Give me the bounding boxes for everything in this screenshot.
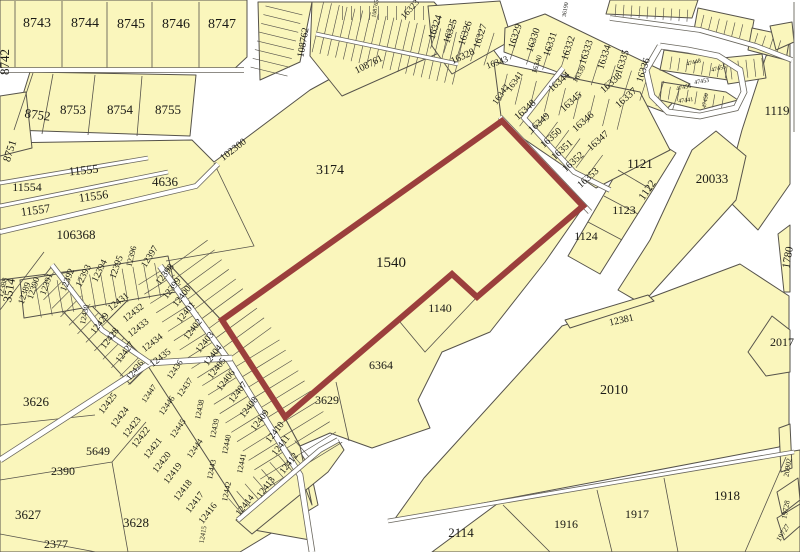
parcel-row-8743-8747[interactable]: [0, 0, 247, 71]
parcel-label-3627: 3627: [15, 507, 42, 522]
parcel-label-47453: 47453: [694, 78, 710, 87]
parcel-label-1123: 1123: [612, 203, 636, 217]
parcel-label-3628: 3628: [123, 515, 149, 530]
parcel-label-8754: 8754: [107, 102, 134, 117]
parcel-label-5649: 5649: [86, 444, 110, 458]
parcel-label-1916: 1916: [554, 517, 578, 531]
subdivision-block-47xxx-b[interactable]: [660, 82, 738, 110]
parcel-label-2017: 2017: [770, 335, 794, 349]
parcel-label-20033: 20033: [696, 171, 729, 186]
parcel-label-1917: 1917: [625, 507, 649, 521]
parcel-label-2377: 2377: [44, 537, 68, 551]
parcel-map-stage: 8742874387448745874687478751875287538754…: [0, 0, 800, 552]
parcel-label-1918: 1918: [714, 488, 740, 503]
parcel-label-3174: 3174: [316, 163, 344, 178]
parcel-label-2390: 2390: [51, 464, 75, 478]
parcel-label-8753: 8753: [60, 102, 86, 117]
parcel-label-8755: 8755: [155, 102, 181, 117]
parcel-label-8747: 8747: [208, 17, 236, 32]
parcel-label-3629: 3629: [315, 393, 339, 407]
parcel-label-106368: 106368: [57, 227, 96, 242]
parcel-label-2114: 2114: [448, 525, 474, 540]
parcel-label-36190: 36190: [562, 2, 571, 18]
parcel-label-8745: 8745: [117, 17, 145, 32]
parcel-label-11554: 11554: [12, 180, 42, 194]
parcel-label-8743: 8743: [23, 16, 51, 31]
parcel-label-3626: 3626: [23, 394, 50, 409]
parcel-label-6364: 6364: [369, 358, 393, 372]
parcel-label-1119: 1119: [764, 103, 789, 118]
parcel-label-1124: 1124: [574, 229, 598, 243]
parcel-label-1780: 1780: [780, 245, 796, 269]
parcel-label-1540: 1540: [376, 255, 406, 271]
subdivision-block-topright-a[interactable]: [606, 0, 698, 18]
parcel-label-2010: 2010: [600, 383, 628, 398]
parcel-label-1140: 1140: [428, 301, 452, 315]
parcel-map[interactable]: 8742874387448745874687478751875287538754…: [0, 0, 800, 552]
parcel-label-8744: 8744: [71, 16, 99, 31]
parcel-label-8746: 8746: [162, 17, 190, 32]
parcel-label-4636: 4636: [152, 174, 179, 189]
parcel-label-1121: 1121: [627, 156, 653, 171]
parcel-label-8742: 8742: [0, 49, 12, 75]
